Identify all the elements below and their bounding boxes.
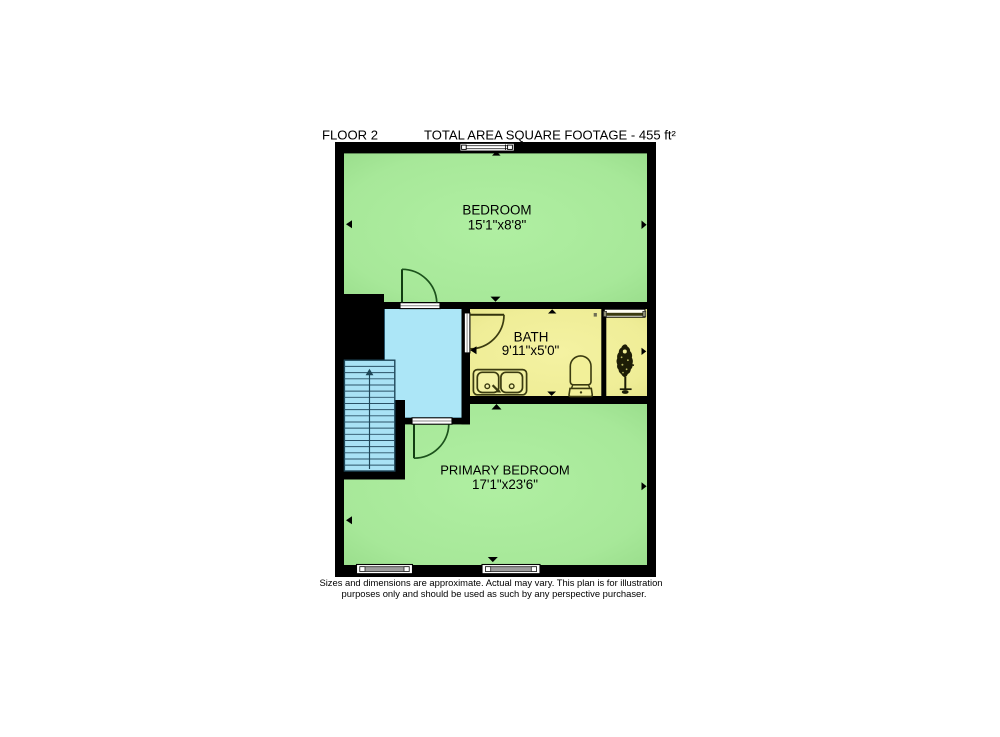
svg-text:9'11"x5'0": 9'11"x5'0" <box>502 343 560 358</box>
svg-text:PRIMARY BEDROOM: PRIMARY BEDROOM <box>440 463 570 478</box>
svg-text:17'1"x23'6": 17'1"x23'6" <box>472 477 538 492</box>
svg-text:BEDROOM: BEDROOM <box>462 203 531 218</box>
svg-text:15'1"x8'8": 15'1"x8'8" <box>468 218 527 233</box>
svg-text:purposes only and should be us: purposes only and should be used as such… <box>342 588 647 599</box>
svg-text:FLOOR 2: FLOOR 2 <box>322 128 378 143</box>
svg-text:TOTAL AREA SQUARE FOOTAGE - 45: TOTAL AREA SQUARE FOOTAGE - 455 ft² <box>424 128 676 143</box>
svg-text:Sizes and dimensions are appro: Sizes and dimensions are approximate. Ac… <box>319 577 662 588</box>
